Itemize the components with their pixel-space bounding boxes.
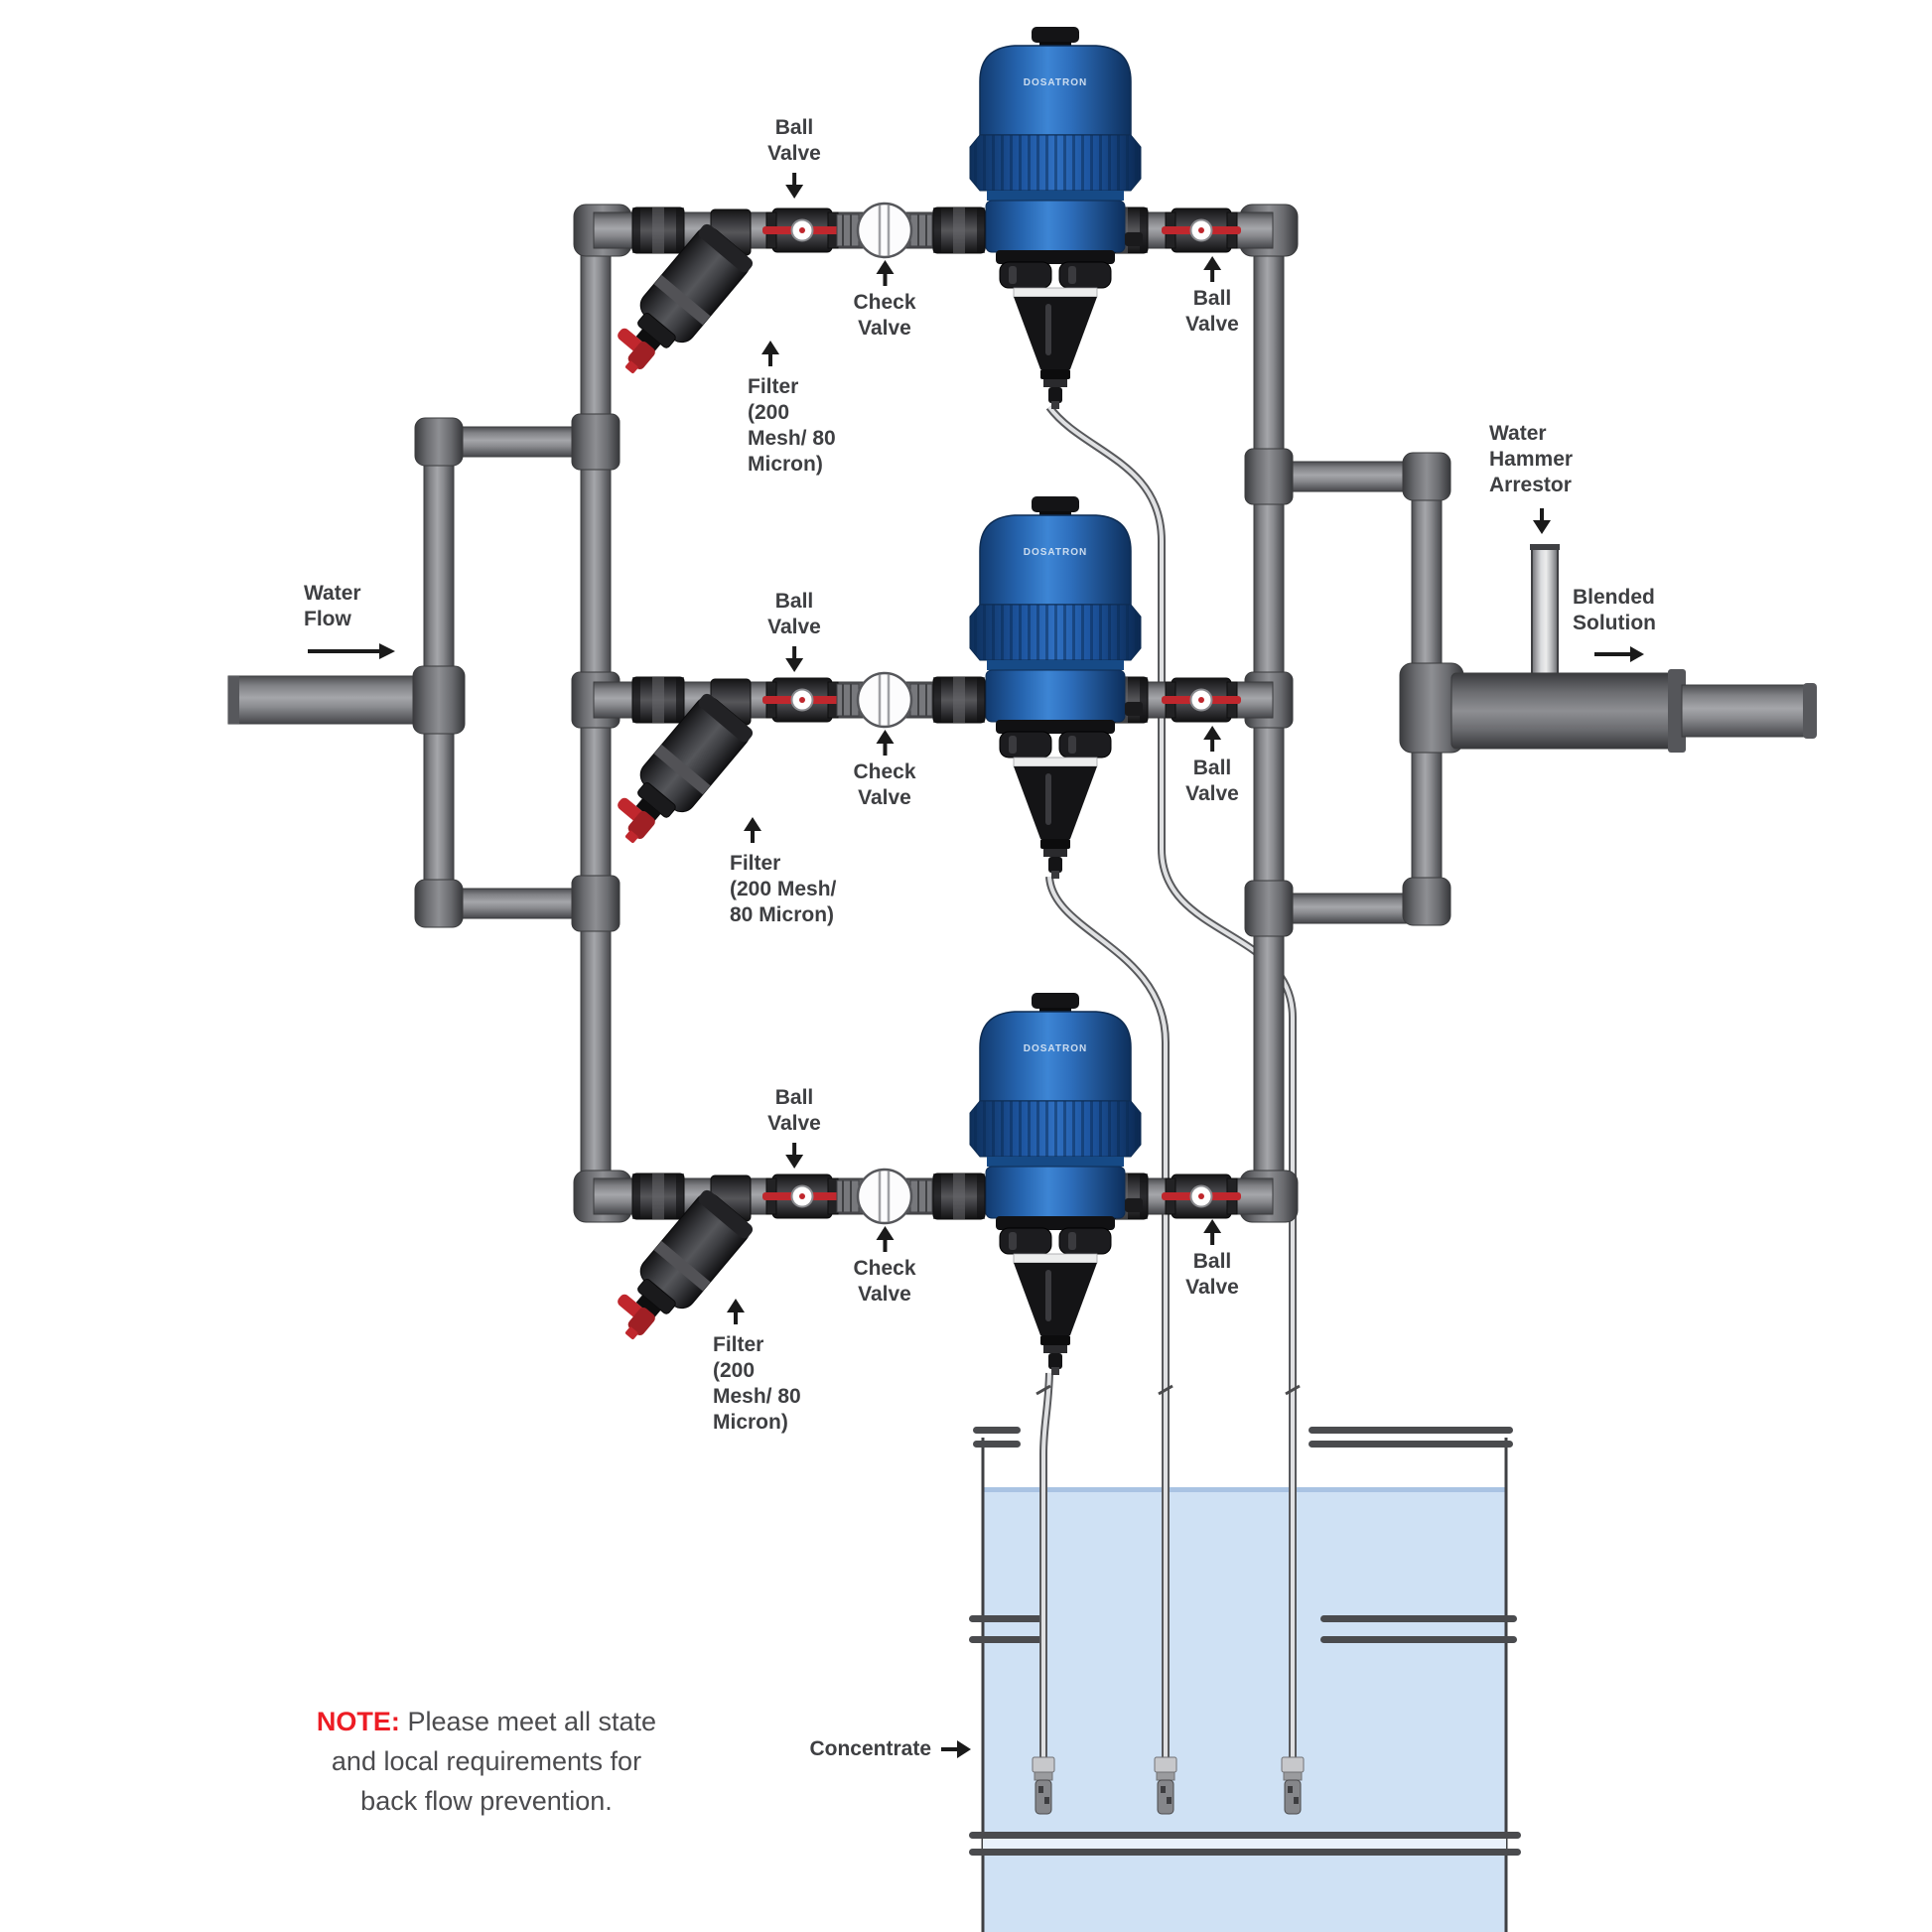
note-prefix: NOTE: [317,1707,400,1736]
up-arrow-icon [727,1299,745,1324]
up-arrow-icon [744,817,761,843]
label-ball-valve: BallValve [767,115,821,199]
down-arrow-icon [1533,508,1551,534]
tee-fitting [572,876,620,931]
label-filter: Filter(200 Mesh/ 80Micron) [713,1299,801,1436]
label-check-valve: CheckValve [853,260,915,342]
down-arrow-icon [785,1143,803,1169]
drum-rim-right [1309,1427,1513,1434]
pump-brand-label: DOSATRON [986,547,1125,558]
inlet-tee-fitting [413,666,465,734]
right-arrow-icon [1594,646,1644,662]
concentrate-drum [969,1427,1521,1932]
down-arrow-icon [785,646,803,672]
label-ball-valve: BallValve [1185,1219,1239,1301]
pump-brand-label: DOSATRON [986,77,1125,88]
strainer [1155,1757,1176,1814]
water-hammer-arrestor-tube [1532,546,1558,681]
label-water-flow: Water Flow [304,581,395,660]
liquid-surface [984,1487,1505,1492]
elbow-fitting [415,418,463,466]
installation-diagram: DOSATRON DOSATRON DOSATRON Water Flow Ba… [0,0,1932,1932]
up-arrow-icon [1203,726,1221,752]
note-text: NOTE: Please meet all state and local re… [310,1702,663,1821]
down-arrow-icon [785,173,803,199]
label-ball-valve: BallValve [1185,256,1239,338]
label-blended-solution: Blended Solution [1573,585,1656,662]
elbow-fitting [1403,453,1450,500]
up-arrow-icon [1203,1219,1221,1245]
strainer [1033,1757,1054,1814]
drum-rim-left [973,1427,1021,1434]
drum-chime [969,1832,1521,1839]
piping-diagram [0,0,1932,1932]
elbow-fitting [1403,878,1450,925]
up-arrow-icon [876,260,894,286]
pump-brand-label: DOSATRON [986,1043,1125,1054]
label-ball-valve: BallValve [767,1085,821,1169]
elbow-fitting [415,880,463,927]
label-water-hammer-arrestor: Water Hammer Arrestor [1489,421,1573,534]
inlet-pipe [228,676,427,724]
tee-fitting [1245,449,1293,504]
label-ball-valve: BallValve [1185,726,1239,807]
drum-liquid [984,1487,1505,1932]
label-concentrate: Concentrate [643,1737,971,1761]
label-check-valve: CheckValve [853,730,915,811]
up-arrow-icon [876,1226,894,1252]
drum-hoop-left [969,1615,1042,1622]
tee-fitting [572,414,620,470]
label-filter: Filter(200 Mesh/ 80Micron) [748,341,836,478]
label-check-valve: CheckValve [853,1226,915,1308]
up-arrow-icon [761,341,779,366]
outlet-tee-body [1451,673,1680,749]
strainer [1282,1757,1304,1814]
outlet-pipe [1682,685,1813,737]
right-arrow-icon [308,642,395,660]
up-arrow-icon [1203,256,1221,282]
up-arrow-icon [876,730,894,756]
right-arrow-icon [941,1740,971,1758]
drum-hoop-right [1320,1615,1517,1622]
label-filter: Filter(200 Mesh/ 80 Micron) [730,817,836,928]
label-ball-valve: BallValve [767,589,821,672]
tee-fitting [1245,881,1293,936]
